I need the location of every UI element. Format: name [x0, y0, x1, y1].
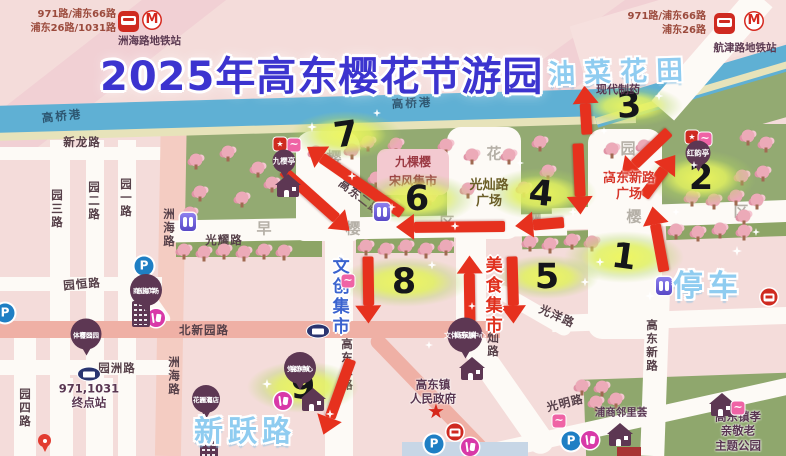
cherry-tree-icon	[503, 149, 516, 162]
pin-tip	[41, 444, 49, 452]
cherry-tree-icon	[576, 380, 589, 393]
bus-body	[312, 329, 324, 335]
decor-char: 园	[620, 138, 635, 159]
tree-trunk	[199, 197, 202, 202]
sparkle-icon	[425, 341, 433, 349]
tree-trunk	[529, 247, 532, 252]
cherry-tree-icon	[178, 244, 191, 257]
restroom-figure	[659, 281, 663, 291]
cherry-tree-icon	[692, 226, 705, 239]
tree-trunk	[203, 257, 206, 262]
metro-icon: M	[142, 10, 162, 30]
tree-trunk	[549, 249, 552, 254]
metro-icon: M	[744, 11, 764, 31]
metro-station-label: 洲海路地铁站	[118, 33, 181, 48]
bubble-tail	[461, 351, 469, 358]
bubble-tail	[142, 305, 150, 312]
decor-char: 花	[486, 143, 501, 164]
place-bubble: 红韵亭	[686, 141, 711, 166]
place-label: 光灿路广场	[469, 178, 508, 211]
restroom-figure	[383, 207, 387, 217]
tree-trunk	[365, 251, 368, 256]
big-label: 停车	[673, 261, 743, 305]
parking-icon: P	[135, 257, 154, 276]
fork-glyph	[151, 313, 154, 323]
road-label: 园恒路	[63, 274, 102, 293]
tree-trunk	[765, 148, 768, 153]
tree-trunk	[271, 188, 274, 193]
restroom-figure	[183, 217, 187, 227]
route-arrow	[580, 103, 593, 135]
restroom-icon	[656, 277, 672, 295]
parking-icon: P	[425, 435, 444, 454]
tree-trunk	[611, 154, 614, 159]
house-door	[468, 373, 473, 380]
metro-station-label: 航津路地铁站	[700, 40, 786, 55]
tree-trunk	[195, 165, 198, 170]
road-label: 园四路	[17, 388, 33, 429]
tree-trunk	[539, 147, 542, 152]
tree-trunk	[675, 235, 678, 240]
sakura-logo-icon: ~	[342, 275, 355, 288]
tree-trunk	[697, 237, 700, 242]
tree-trunk	[257, 173, 260, 178]
bus-stop-icon	[447, 424, 464, 441]
road-label: 高东新路	[644, 319, 660, 373]
sakura-logo-icon: ~	[732, 402, 745, 415]
cherry-tree-icon	[236, 192, 249, 205]
cherry-tree-icon	[670, 224, 683, 237]
sakura-logo-icon: ~	[553, 415, 566, 428]
cherry-tree-icon	[198, 246, 211, 259]
tree-trunk	[743, 236, 746, 241]
cup-glyph	[282, 397, 288, 406]
route-marker-8: 8	[392, 262, 416, 302]
tree-trunk	[756, 205, 759, 210]
cherry-tree-icon	[738, 210, 751, 223]
cherry-tree-icon	[400, 240, 413, 253]
bus-body	[83, 372, 95, 378]
restroom-icon	[180, 213, 196, 231]
sparkle-icon	[732, 246, 742, 256]
road-label: 新龙路	[63, 134, 101, 150]
bus-window	[452, 431, 459, 434]
house-window	[476, 370, 480, 374]
road-label: 园三路	[49, 189, 65, 230]
tree-trunk	[223, 255, 226, 260]
cherry-tree-icon	[380, 243, 393, 256]
bus-icon	[714, 13, 735, 34]
bus-stop-icon	[78, 368, 100, 381]
route-arrow	[532, 217, 564, 230]
cherry-tree-icon	[440, 240, 453, 253]
house-window	[726, 406, 730, 410]
place-label: 浦商邻里荟	[595, 406, 648, 419]
place-bubble: 高东镇文体活动中心	[448, 318, 483, 353]
bus-line-label: 971路/浦东66路	[18, 8, 116, 22]
tree-trunk	[601, 392, 604, 397]
building-block	[617, 447, 641, 456]
route-arrow-head	[356, 305, 382, 323]
road-label: 园二路	[86, 181, 102, 222]
house-door	[284, 190, 289, 197]
cup-glyph	[469, 443, 475, 452]
page-title: 2025年高东樱花节游园	[100, 44, 543, 102]
route-marker-4: 4	[527, 173, 555, 215]
road-label: 园一路	[118, 178, 134, 219]
tree-trunk	[508, 160, 511, 165]
place-bubble: 樱园体育公园	[71, 319, 102, 350]
bus-line-label: 浦东26路	[608, 24, 706, 38]
transit-lines-left: 971路/浦东66路 浦东26路/1031路	[18, 8, 116, 35]
food-icon	[581, 431, 599, 449]
route-marker-6: 6	[405, 179, 429, 219]
location-pin-icon	[38, 434, 52, 454]
house-icon	[300, 388, 326, 412]
cherry-tree-icon	[238, 246, 251, 259]
bus-line-label: 971路/浦东66路	[608, 10, 706, 24]
bus-stop-icon	[307, 325, 329, 338]
route-arrow	[363, 256, 375, 305]
cherry-tree-icon	[596, 381, 609, 394]
house-door	[309, 404, 314, 411]
tree-trunk	[241, 203, 244, 208]
cherry-tree-icon	[190, 154, 203, 167]
food-icon	[461, 438, 479, 456]
place-bubble: 高东镇党群中心	[284, 352, 316, 384]
place-label: 文创集市	[327, 257, 348, 337]
sakura-logo-icon: ~	[288, 139, 301, 152]
decor-char: 早	[256, 218, 271, 239]
tree-trunk	[183, 255, 186, 260]
bubble-tail	[82, 348, 90, 355]
house-window	[624, 436, 628, 440]
cherry-tree-icon	[278, 245, 291, 258]
fork-glyph	[278, 396, 281, 406]
cherry-tree-icon	[194, 186, 207, 199]
cherry-tree-icon	[757, 166, 770, 179]
restroom-figure	[665, 281, 669, 291]
house-window	[317, 401, 321, 405]
bus-window	[766, 296, 773, 299]
tree-trunk	[581, 391, 584, 396]
cherry-tree-icon	[534, 136, 547, 149]
place-bubble: 九樱亭	[273, 150, 296, 173]
cup-glyph	[155, 314, 161, 323]
bubble-tail	[280, 172, 288, 179]
transit-lines-right: 971路/浦东66路 浦东26路	[608, 10, 706, 37]
pin-dot	[43, 439, 47, 443]
fork-glyph	[585, 435, 588, 445]
cherry-tree-icon	[218, 244, 231, 257]
road-label: 洲海路	[161, 208, 177, 249]
route-arrow-head	[456, 255, 482, 273]
tree-trunk	[263, 255, 266, 260]
cherry-tree-icon	[420, 243, 433, 256]
parking-icon: P	[0, 304, 15, 323]
tree-trunk	[227, 157, 230, 162]
government-star-icon: ★	[427, 399, 445, 423]
place-label: 美食集市	[480, 256, 501, 336]
place-label: 高东新路广场	[603, 171, 655, 204]
route-arrow	[414, 221, 505, 233]
restroom-figure	[189, 217, 193, 227]
cherry-tree-icon	[466, 149, 479, 162]
restroom-icon	[374, 203, 390, 221]
place-bubble: 东海岸商业广场	[130, 274, 162, 306]
cherry-tree-icon	[252, 162, 265, 175]
bus-icon	[118, 11, 139, 32]
tree-trunk	[735, 201, 738, 206]
road-label: 北新园路	[179, 322, 229, 338]
restroom-figure	[377, 207, 381, 217]
house-icon	[275, 174, 301, 198]
tree-trunk	[747, 141, 750, 146]
cherry-tree-icon	[544, 238, 557, 251]
route-arrow	[573, 143, 586, 196]
tree-trunk	[243, 257, 246, 262]
tree-trunk	[762, 177, 765, 182]
parking-icon: P	[562, 432, 581, 451]
cherry-tree-icon	[360, 240, 373, 253]
house-icon	[459, 357, 485, 381]
bus-line-label: 浦东26路/1031路	[18, 22, 116, 36]
fork-glyph	[465, 442, 468, 452]
festival-map: 2025年高东樱花节游园 油菜花田 现代制药 971路/浦东66路 浦东26路/…	[0, 0, 786, 456]
house-window	[292, 187, 296, 191]
route-marker-5: 5	[535, 257, 559, 297]
bus-stop-icon	[761, 289, 778, 306]
cherry-tree-icon	[606, 143, 619, 156]
cherry-tree-icon	[222, 146, 235, 159]
route-arrow-head	[514, 212, 534, 239]
cup-glyph	[589, 436, 595, 445]
cherry-tree-icon	[751, 194, 764, 207]
route-arrow	[507, 256, 519, 305]
tree-trunk	[471, 160, 474, 165]
cherry-tree-icon	[760, 137, 773, 150]
factory-label: 现代制药	[596, 81, 640, 97]
road-label: 园洲路	[98, 360, 136, 376]
cherry-tree-icon	[258, 244, 271, 257]
tree-trunk	[405, 251, 408, 256]
cherry-tree-icon	[610, 393, 623, 406]
house-icon	[607, 423, 633, 447]
place-label: 971,1031终点站	[59, 382, 119, 411]
road-label: 洲海路	[166, 356, 182, 397]
house-door	[616, 439, 621, 446]
tree-trunk	[719, 234, 722, 239]
bubble-tail	[296, 383, 304, 390]
house-door	[718, 409, 723, 416]
big-label: 新跃路	[194, 408, 296, 450]
road-label: 光明路	[545, 391, 585, 416]
tree-trunk	[283, 256, 286, 261]
cherry-tree-icon	[742, 130, 755, 143]
cherry-tree-icon	[738, 225, 751, 238]
cherry-tree-icon	[714, 223, 727, 236]
tree-trunk	[445, 251, 448, 256]
route-arrow-head	[500, 305, 527, 324]
